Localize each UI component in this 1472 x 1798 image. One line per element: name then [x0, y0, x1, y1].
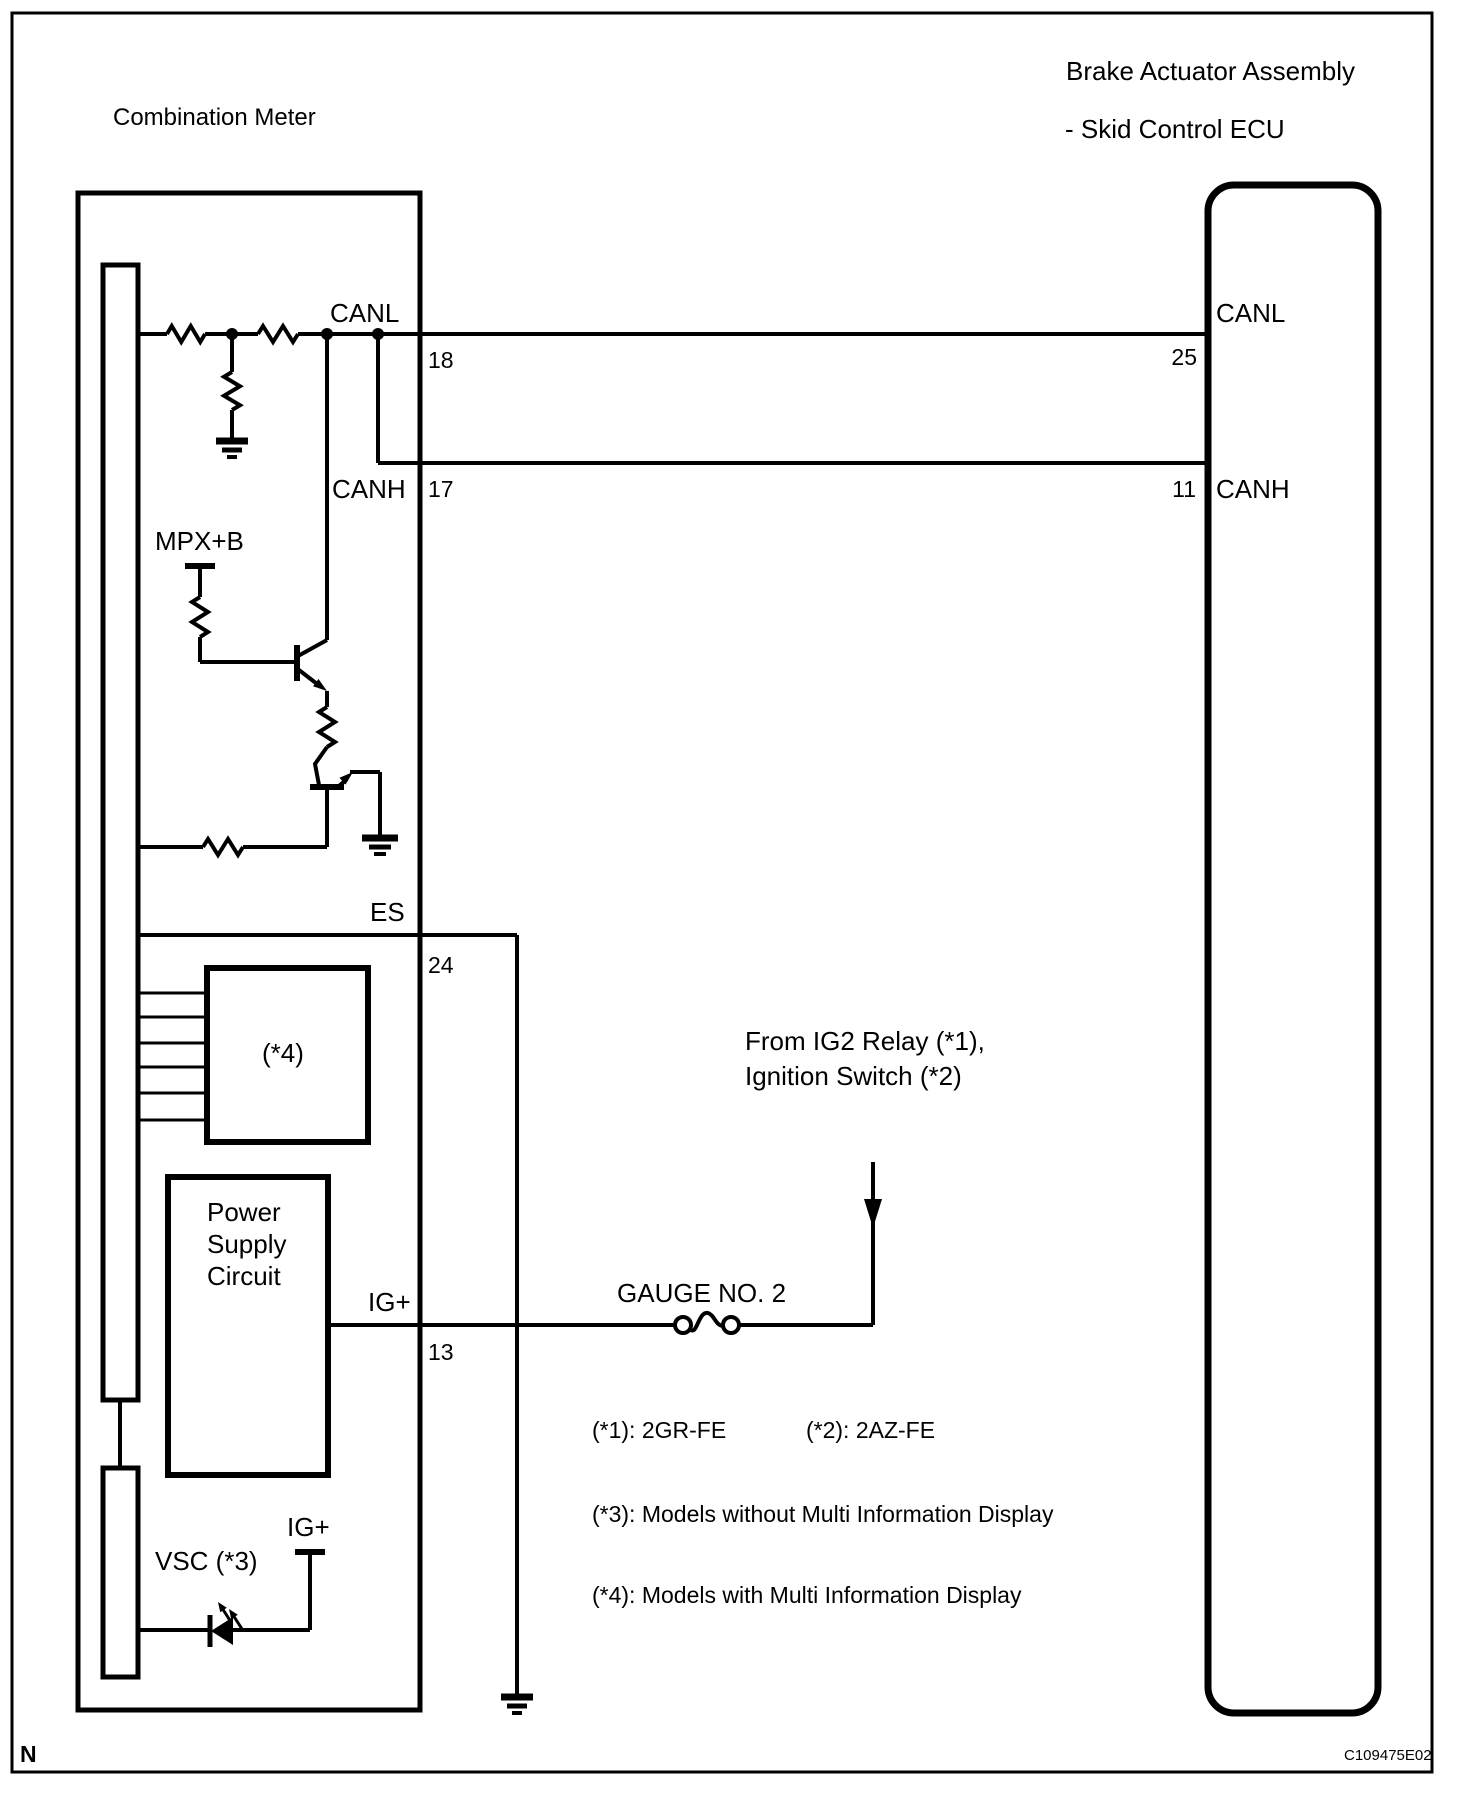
fuse-icon	[675, 1313, 739, 1333]
wiring-diagram-canvas: Combination Meter Brake Actuator Assembl…	[0, 0, 1472, 1798]
note-line2: (*3): Models without Multi Information D…	[592, 1501, 1054, 1527]
psu-label-line2: Supply	[207, 1229, 287, 1259]
led-icon	[210, 1602, 242, 1647]
resistor	[167, 326, 205, 342]
canl-meter-label: CANL	[330, 298, 399, 328]
psu-label-line3: Circuit	[207, 1261, 281, 1291]
fuse-label: GAUGE NO. 2	[617, 1278, 786, 1308]
canh-meter-label: CANH	[332, 474, 406, 504]
ground-icon	[501, 1697, 533, 1713]
ground-icon	[216, 441, 248, 457]
mpxb-label: MPX+B	[155, 526, 244, 556]
resistor	[258, 326, 298, 342]
vsc-ig-plus-label: IG+	[287, 1512, 330, 1542]
vsc-label: VSC (*3)	[155, 1546, 258, 1576]
canl-wire	[138, 326, 1208, 342]
meter-bus-bar-lower	[103, 1468, 138, 1677]
base-return-wire	[138, 839, 327, 855]
right-component-title-line2: - Skid Control ECU	[1065, 114, 1285, 144]
es-pin: 24	[428, 952, 454, 978]
source-label-line1: From IG2 Relay (*1),	[745, 1026, 985, 1056]
multi-info-display-label: (*4)	[262, 1038, 304, 1068]
canl-ecu-pin: 25	[1171, 344, 1197, 370]
page-mark: N	[20, 1741, 37, 1767]
canh-meter-pin: 17	[428, 476, 454, 502]
psu-label-line1: Power	[207, 1197, 281, 1227]
canh-ecu-label: CANH	[1216, 474, 1290, 504]
arrow-down-icon	[864, 1199, 882, 1228]
resistor	[319, 707, 335, 747]
canl-ecu-label: CANL	[1216, 298, 1285, 328]
ig-plus-label: IG+	[368, 1287, 411, 1317]
right-component-title-line1: Brake Actuator Assembly	[1066, 56, 1355, 86]
canh-wire	[378, 334, 1208, 463]
note-line1a: (*1): 2GR-FE	[592, 1417, 726, 1443]
display-box-stub-wires	[138, 993, 207, 1120]
source-label-line2: Ignition Switch (*2)	[745, 1061, 962, 1091]
left-component-title: Combination Meter	[113, 104, 316, 131]
canl-meter-pin: 18	[428, 347, 454, 373]
figure-code: C109475E02	[1344, 1747, 1432, 1764]
transistor-icon	[297, 640, 327, 707]
transistor-icon	[310, 747, 380, 847]
resistor	[192, 597, 208, 637]
ig-plus-wire	[328, 1162, 882, 1333]
canl-termination-branch	[216, 334, 248, 457]
skid-control-ecu-box	[1208, 185, 1378, 1713]
meter-bus-bar-upper	[103, 265, 138, 1400]
combination-meter-box	[78, 193, 420, 1710]
ig-plus-pin: 13	[428, 1339, 454, 1365]
note-line1b: (*2): 2AZ-FE	[806, 1417, 935, 1443]
es-label: ES	[370, 897, 405, 927]
resistor	[224, 372, 240, 410]
resistor	[203, 839, 243, 855]
ground-icon	[362, 838, 398, 854]
wiring-diagram-page: Combination Meter Brake Actuator Assembl…	[0, 0, 1472, 1798]
mpxb-branch	[185, 566, 297, 662]
note-line3: (*4): Models with Multi Information Disp…	[592, 1582, 1022, 1608]
canh-ecu-pin: 11	[1172, 476, 1196, 502]
